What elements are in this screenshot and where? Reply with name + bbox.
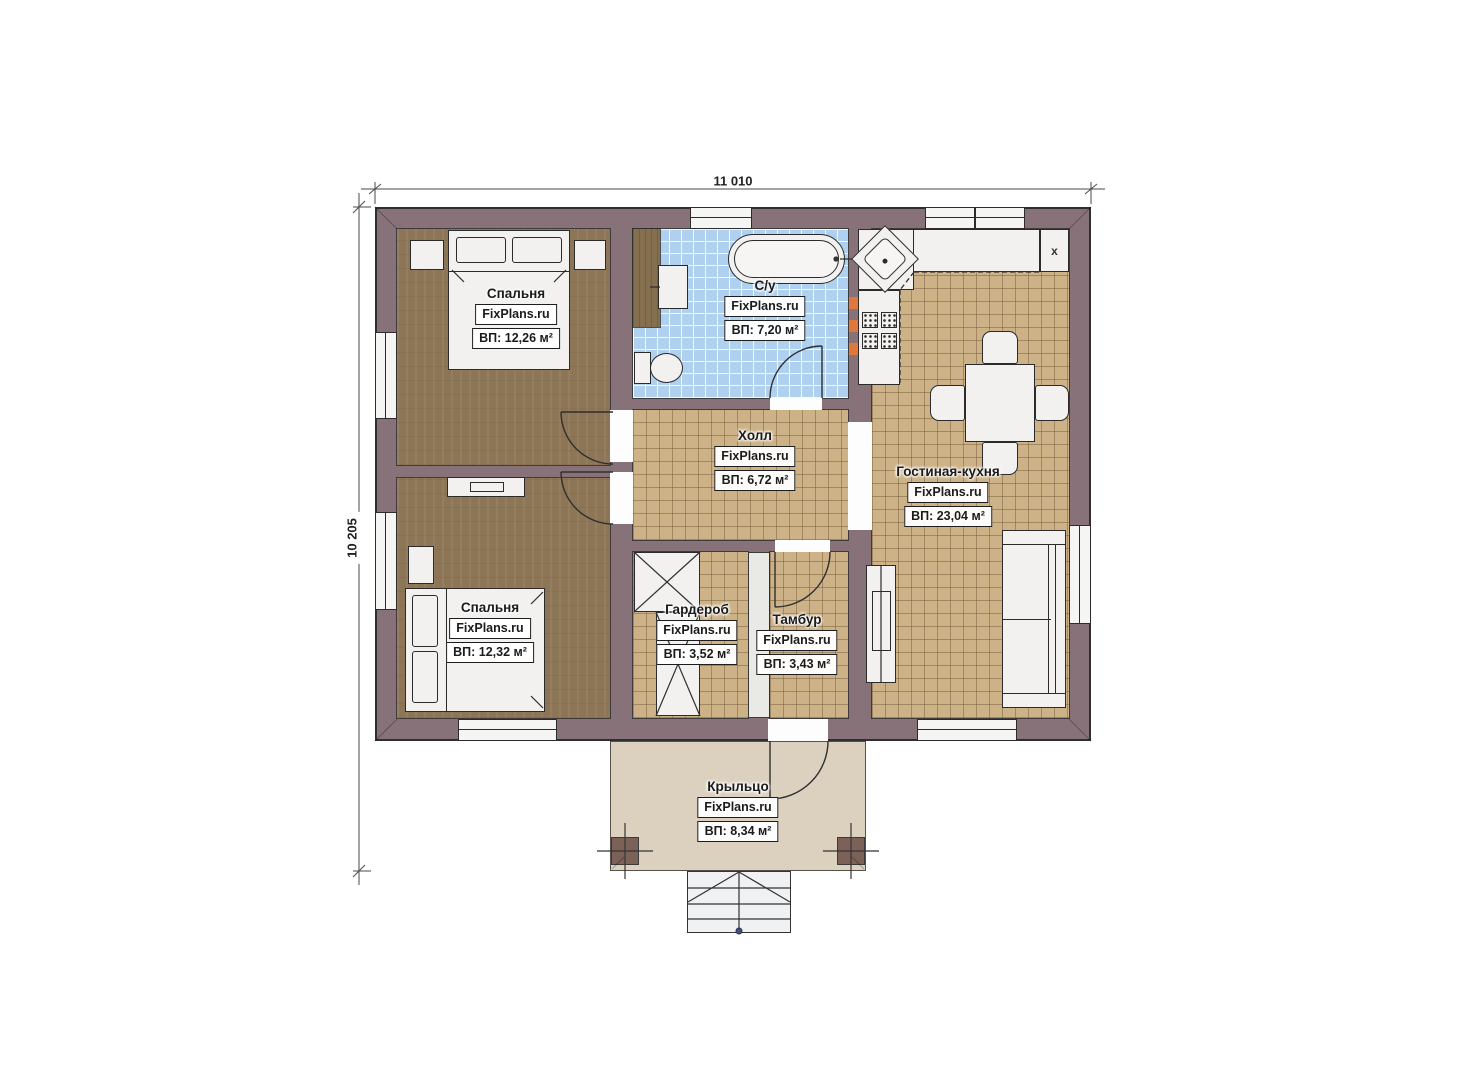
room-name: Спальня xyxy=(461,600,519,615)
area-badge: ВП: 7,20 м² xyxy=(725,320,806,341)
brand-badge: FixPlans.ru xyxy=(475,304,556,325)
dresser xyxy=(447,477,525,497)
chair xyxy=(982,331,1018,364)
brand-badge: FixPlans.ru xyxy=(656,620,737,641)
room-name: Гостиная-кухня xyxy=(896,464,999,479)
flue-marker xyxy=(849,343,858,355)
tall-cabinet xyxy=(866,565,896,683)
room-label-tambour: Тамбур FixPlans.ru ВП: 3,43 м² xyxy=(756,612,837,675)
brand-badge: FixPlans.ru xyxy=(697,797,778,818)
chair xyxy=(1035,385,1069,421)
flue-marker xyxy=(849,320,858,332)
window xyxy=(375,512,397,610)
area-badge: ВП: 23,04 м² xyxy=(904,506,992,527)
blanket-edge xyxy=(449,271,569,272)
area-badge: ВП: 12,32 м² xyxy=(446,642,534,663)
vent-cabinet: x xyxy=(1040,229,1069,272)
stove-burner xyxy=(862,333,878,349)
brand-badge: FixPlans.ru xyxy=(756,630,837,651)
door-opening-bedroom-bottom xyxy=(610,472,633,524)
room-label-bathroom: С/у FixPlans.ru ВП: 7,20 м² xyxy=(724,278,805,341)
brand-badge: FixPlans.ru xyxy=(724,296,805,317)
entry-steps xyxy=(687,871,791,933)
brand-badge: FixPlans.ru xyxy=(449,618,530,639)
room-label-hall: Холл FixPlans.ru ВП: 6,72 м² xyxy=(714,428,795,491)
dining-table xyxy=(965,364,1035,442)
sofa-seat-split xyxy=(1003,619,1051,620)
door-opening-bathroom xyxy=(770,398,822,410)
nightstand xyxy=(408,546,434,584)
tall-cabinet-door xyxy=(872,591,891,651)
stove-burner xyxy=(881,333,897,349)
room-label-living-kitchen: Гостиная-кухня FixPlans.ru ВП: 23,04 м² xyxy=(896,464,999,527)
bathtub xyxy=(728,234,845,284)
porch-post xyxy=(837,837,865,865)
window xyxy=(925,207,1025,229)
hall-living-passage xyxy=(848,422,872,530)
floor-plan-page: { "dimensions": { "width": "11 010", "he… xyxy=(0,0,1473,1080)
window xyxy=(375,332,397,419)
window xyxy=(690,207,752,229)
room-name: Спальня xyxy=(487,286,545,301)
room-label-wardrobe: Гардероб FixPlans.ru ВП: 3,52 м² xyxy=(656,602,737,665)
room-name: С/у xyxy=(754,278,775,293)
chair xyxy=(930,385,965,421)
pillow xyxy=(512,237,562,263)
window xyxy=(458,719,557,741)
area-badge: ВП: 3,43 м² xyxy=(757,654,838,675)
area-badge: ВП: 8,34 м² xyxy=(698,821,779,842)
flue-marker xyxy=(849,297,858,309)
stove-burner xyxy=(881,312,897,328)
nightstand xyxy=(574,240,606,270)
room-label-porch: Крыльцо FixPlans.ru ВП: 8,34 м² xyxy=(697,779,778,842)
sofa-arm xyxy=(1003,531,1065,545)
brand-badge: FixPlans.ru xyxy=(714,446,795,467)
pillow xyxy=(456,237,506,263)
pillow xyxy=(412,651,438,703)
stove-burner xyxy=(862,312,878,328)
room-label-bedroom-bottom: Спальня FixPlans.ru ВП: 12,32 м² xyxy=(446,600,534,663)
area-badge: ВП: 12,26 м² xyxy=(472,328,560,349)
room-name: Гардероб xyxy=(665,602,729,617)
room-name: Холл xyxy=(738,428,772,443)
sofa xyxy=(1002,530,1066,708)
brand-badge: FixPlans.ru xyxy=(907,482,988,503)
sofa-arm xyxy=(1003,693,1065,707)
door-opening-bedroom-top xyxy=(610,410,633,462)
room-name: Крыльцо xyxy=(707,779,768,794)
window xyxy=(917,719,1017,741)
area-badge: ВП: 3,52 м² xyxy=(657,644,738,665)
dimension-height: 10 205 xyxy=(345,512,360,564)
vent-label: x xyxy=(1051,244,1058,258)
toilet-bowl xyxy=(650,353,683,383)
area-badge: ВП: 6,72 м² xyxy=(715,470,796,491)
door-opening-tambour xyxy=(775,540,830,552)
bathroom-sink xyxy=(658,265,688,309)
room-name: Тамбур xyxy=(773,612,822,627)
bathtub-basin xyxy=(734,240,839,278)
dresser-handle xyxy=(470,482,504,492)
window xyxy=(1069,525,1091,624)
dimension-width: 11 010 xyxy=(707,174,758,189)
room-label-bedroom-top: Спальня FixPlans.ru ВП: 12,26 м² xyxy=(472,286,560,349)
pillow xyxy=(412,595,438,647)
toilet-tank xyxy=(634,352,651,384)
nightstand xyxy=(410,240,444,270)
porch-post xyxy=(611,837,639,865)
entrance-door-opening xyxy=(768,719,828,741)
vent-shaft xyxy=(633,229,660,327)
sofa-back xyxy=(1055,545,1056,693)
